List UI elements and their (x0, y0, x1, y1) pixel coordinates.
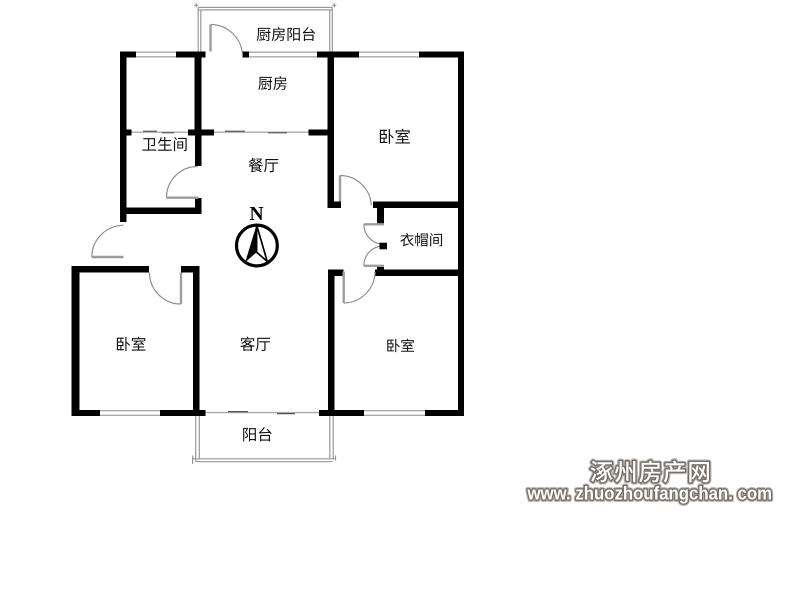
svg-text:N: N (250, 204, 264, 225)
svg-text:www. zhuozhoufangchan. com: www. zhuozhoufangchan. com (527, 484, 772, 504)
